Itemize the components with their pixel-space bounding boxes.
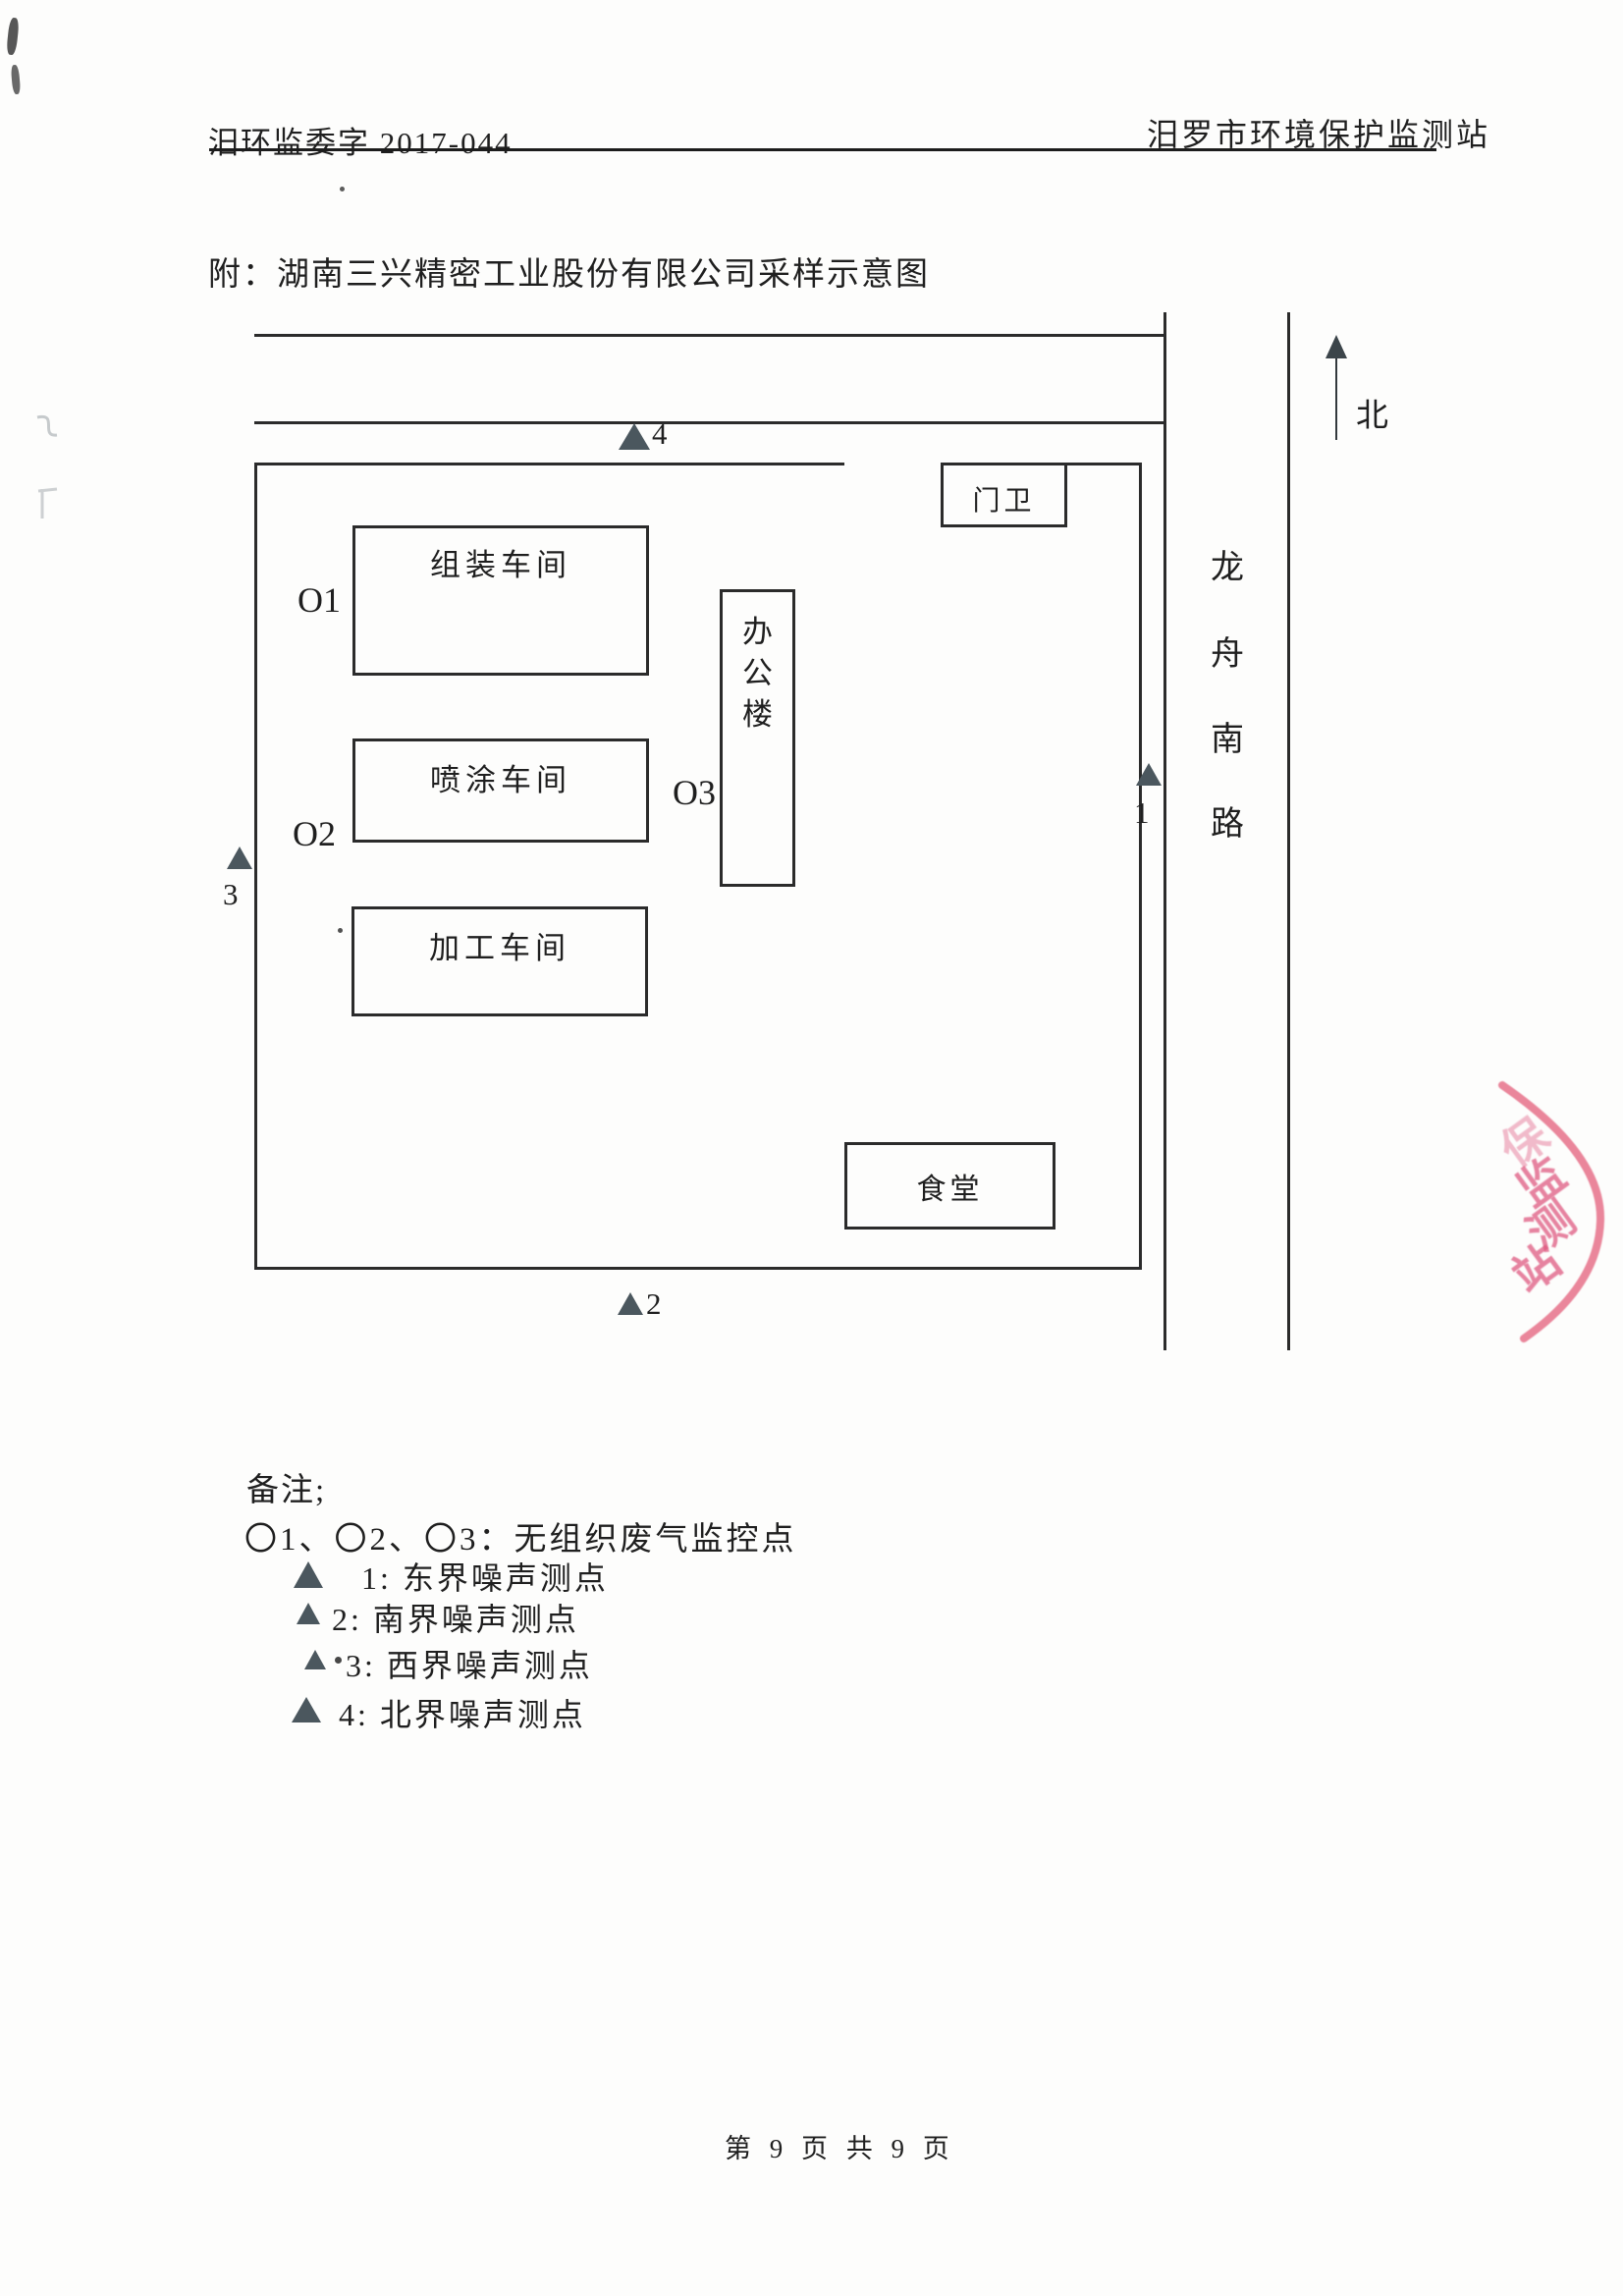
legend-item-north: 4: 北界噪声测点 <box>339 1690 586 1735</box>
legend-item-south: 2: 南界噪声测点 <box>332 1595 579 1640</box>
legend-triangle-icon <box>294 1558 323 1588</box>
road-edge-top-1 <box>254 334 1164 337</box>
noise-marker-4-icon <box>619 420 650 450</box>
building-label-spray: 喷涂车间 <box>355 755 646 799</box>
road-name-char: 路 <box>1210 796 1245 845</box>
building-processing-workshop: 加工车间 <box>352 906 648 1016</box>
legend-item-west: 3: 西界噪声测点 <box>346 1641 593 1686</box>
road-name-char: 南 <box>1210 712 1245 760</box>
building-gatehouse: 门卫 <box>941 463 1067 527</box>
building-label-office-char: 公 <box>742 653 773 694</box>
gas-point-o1-label: O1 <box>298 579 341 621</box>
scan-dot <box>335 1657 342 1664</box>
legend-item-east: 1: 东界噪声测点 <box>361 1554 609 1599</box>
building-canteen: 食堂 <box>844 1142 1055 1230</box>
building-label-office-char: 办 <box>742 612 773 653</box>
noise-marker-4-label: 4 <box>652 416 668 452</box>
north-arrow-head-icon <box>1325 332 1347 358</box>
header-rule <box>209 148 1436 151</box>
legend-triangle-icon <box>297 1600 320 1624</box>
noise-marker-2-label: 2 <box>646 1286 662 1322</box>
scan-dot <box>340 187 345 191</box>
gas-point-o2-label: O2 <box>293 813 336 854</box>
noise-marker-2-icon <box>618 1289 643 1315</box>
legend-triangle-icon <box>292 1694 321 1722</box>
notes-heading: 备注; <box>246 1463 326 1510</box>
scan-dot <box>338 928 343 933</box>
building-office: 办 公 楼 <box>720 589 795 887</box>
factory-boundary-left <box>254 463 257 1270</box>
factory-boundary-top-left-seg <box>254 463 844 465</box>
gas-point-o3-label: O3 <box>673 772 716 813</box>
building-assembly-workshop: 组装车间 <box>352 525 649 676</box>
noise-marker-3-icon <box>227 844 252 869</box>
road-name-char: 龙 <box>1210 540 1245 588</box>
notes-gas-line: 〇1、〇2、〇3：无组织废气监控点 <box>244 1512 797 1559</box>
header-doc-number: 汨环监委字 2017-044 <box>208 118 513 162</box>
page-footer: 第 9 页 共 9 页 <box>725 2127 955 2165</box>
building-label-office-char: 楼 <box>742 694 773 736</box>
north-label: 北 <box>1356 389 1388 436</box>
factory-boundary-bottom <box>254 1267 1142 1270</box>
building-label-canteen: 食堂 <box>847 1165 1053 1208</box>
noise-marker-1-label: 1 <box>1134 795 1150 831</box>
scan-smudge <box>33 483 65 524</box>
north-arrow-icon <box>1335 348 1337 440</box>
scan-speck <box>6 18 20 56</box>
road-edge-right-outer <box>1287 312 1290 1350</box>
road-name-char: 舟 <box>1210 627 1245 675</box>
page-title: 附：湖南三兴精密工业股份有限公司采样示意图 <box>208 247 930 295</box>
building-label-assembly: 组装车间 <box>355 540 646 584</box>
noise-marker-1-icon <box>1136 760 1162 786</box>
legend-triangle-icon <box>304 1647 326 1669</box>
building-spray-workshop: 喷涂车间 <box>352 738 649 843</box>
factory-boundary-right <box>1139 463 1142 1270</box>
factory-boundary-top-right-seg <box>1067 463 1142 465</box>
building-label-processing: 加工车间 <box>354 923 645 967</box>
road-edge-top-2 <box>254 421 1164 424</box>
road-edge-right-inner <box>1163 312 1166 1350</box>
scanned-page: 汨环监委字 2017-044 汨罗市环境保护监测站 附：湖南三兴精密工业股份有限… <box>0 0 1623 2296</box>
scan-smudge <box>29 408 69 457</box>
building-label-gatehouse: 门卫 <box>944 479 1064 519</box>
scan-speck <box>11 65 22 95</box>
noise-marker-3-label: 3 <box>223 877 239 912</box>
